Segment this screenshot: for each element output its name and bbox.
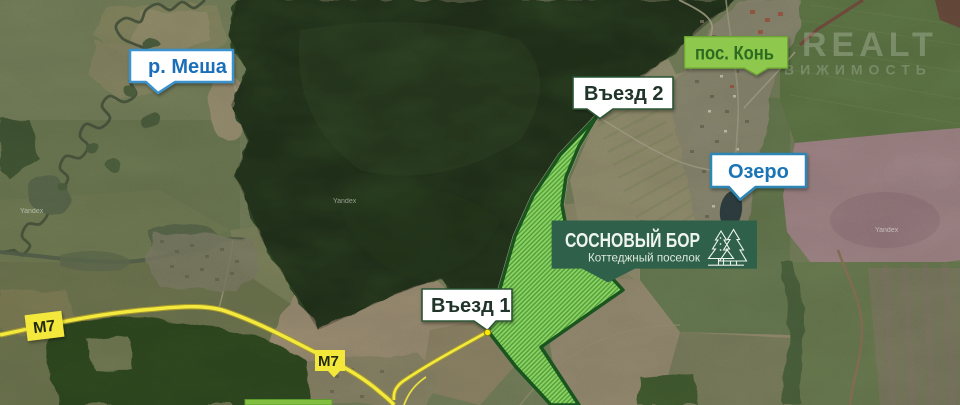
svg-text:Озеро: Озеро — [728, 161, 789, 183]
svg-text:Yandex: Yandex — [333, 198, 357, 205]
svg-text:р. Меша: р. Меша — [148, 56, 228, 78]
svg-text:СОСНОВЫЙ БОР: СОСНОВЫЙ БОР — [565, 228, 700, 252]
svg-text:Коттеджный поселок: Коттеджный поселок — [588, 251, 701, 265]
svg-text:Yandex: Yandex — [20, 208, 44, 215]
svg-text:Yandex: Yandex — [875, 227, 899, 234]
svg-text:Въезд 2: Въезд 2 — [584, 83, 663, 105]
svg-text:М7: М7 — [318, 353, 339, 370]
svg-text:REALT: REALT — [802, 26, 938, 64]
svg-text:пос. Конь: пос. Конь — [695, 44, 774, 65]
svg-text:ВИЖИМОСТЬ: ВИЖИМОСТЬ — [784, 62, 932, 78]
svg-text:М7: М7 — [32, 318, 56, 338]
svg-text:Въезд 1: Въезд 1 — [431, 295, 510, 317]
